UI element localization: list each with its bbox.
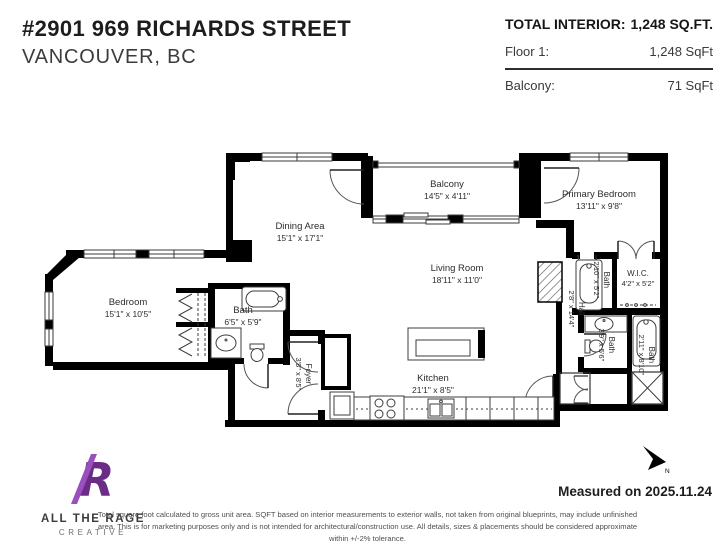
room-label-dining-area: Dining Area15'1" x 17'1": [250, 220, 350, 245]
north-arrow-icon: N: [643, 446, 670, 475]
disclaimer-text: Total square foot calculated to gross un…: [95, 509, 640, 544]
storage-closet: [323, 336, 349, 388]
room-label-wic: W.I.C.4'2" x 5'2": [612, 268, 664, 290]
room-label-bath-main: Bath6'5" x 5'9": [214, 304, 272, 329]
room-label-bath-ensuite: Bath2'10" x 5'2": [590, 250, 612, 310]
room-label-bath-center: Bath3'9" x 5'6": [595, 317, 617, 373]
all-the-rage-logo-icon: R: [61, 452, 125, 506]
room-label-bath-right: Bath2'11" x 8'10": [635, 323, 657, 387]
room-label-primary-bedroom: Primary Bedroom13'11" x 9'8": [538, 188, 660, 213]
room-label-living-room: Living Room18'11" x 11'0": [398, 262, 516, 287]
room-label-foyer: Foyer3'8" x 8'5": [292, 344, 314, 404]
svg-text:N: N: [665, 468, 670, 475]
room-label-bedroom: Bedroom15'1" x 10'5": [76, 296, 180, 321]
room-label-kitchen: Kitchen21'1" x 8'5": [385, 372, 481, 397]
room-label-balcony: Balcony14'5" x 4'11": [398, 178, 496, 203]
measured-date: Measured on 2025.11.24: [558, 484, 712, 499]
room-label-hall: Hall2'8" x 14'4": [565, 274, 587, 344]
floorplan-page: { "header": { "title": "#2901 969 RICHAR…: [0, 0, 720, 556]
hatched-column: [538, 262, 562, 302]
